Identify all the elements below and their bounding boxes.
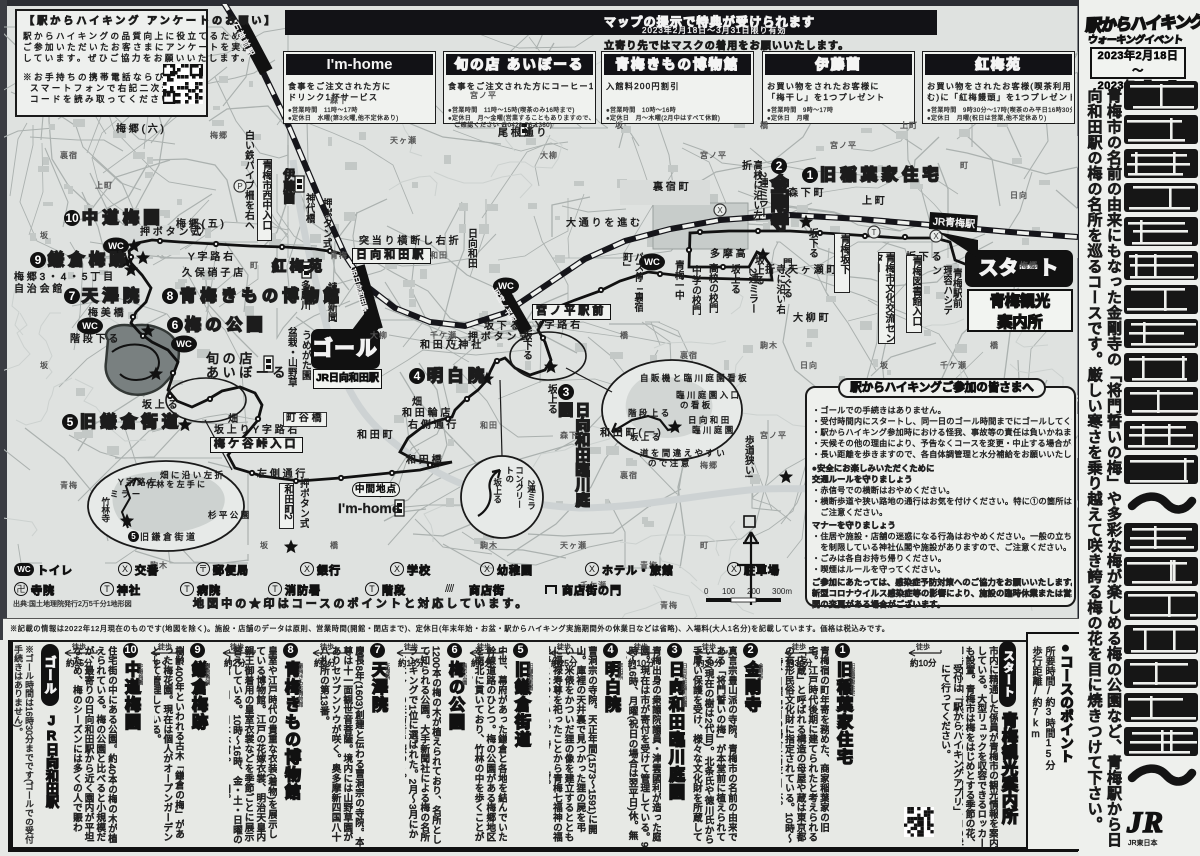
- svg-text:0: 0: [704, 587, 709, 596]
- svg-text:WC: WC: [644, 257, 660, 268]
- svg-text:100: 100: [722, 587, 736, 596]
- svg-text:WC: WC: [176, 339, 192, 350]
- svg-text:X: X: [717, 206, 723, 215]
- svg-text:T: T: [872, 228, 877, 237]
- svg-text:300m: 300m: [772, 587, 792, 596]
- svg-text:WC: WC: [82, 321, 98, 332]
- svg-text:200: 200: [747, 587, 761, 596]
